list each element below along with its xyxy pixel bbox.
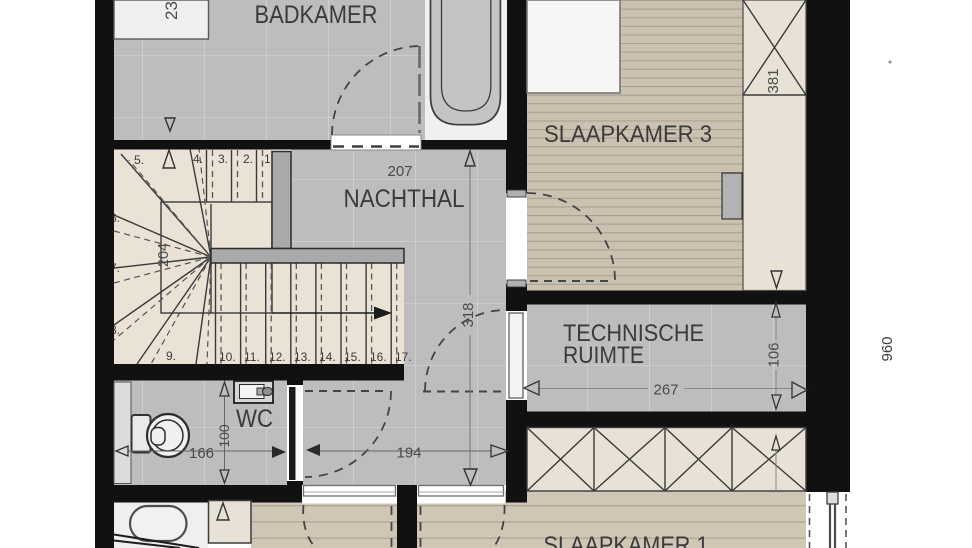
svg-text:318: 318 — [460, 302, 477, 327]
svg-text:2.: 2. — [243, 152, 253, 166]
svg-text:17.: 17. — [395, 350, 412, 364]
svg-text:13.: 13. — [294, 350, 311, 364]
svg-text:100: 100 — [216, 424, 232, 448]
svg-text:1: 1 — [264, 152, 271, 166]
svg-text:207: 207 — [387, 163, 412, 180]
svg-text:SLAAPKAMER 3: SLAAPKAMER 3 — [544, 121, 712, 148]
svg-text:960: 960 — [879, 336, 896, 361]
svg-text:267: 267 — [653, 382, 678, 399]
svg-text:WC: WC — [236, 405, 273, 433]
svg-text:10.: 10. — [219, 350, 236, 364]
svg-text:106: 106 — [766, 342, 783, 367]
svg-text:381: 381 — [765, 68, 782, 93]
svg-text:NACHTHAL: NACHTHAL — [344, 185, 465, 213]
svg-text:5.: 5. — [134, 153, 144, 167]
svg-text:SLAAPKAMER 1: SLAAPKAMER 1 — [544, 532, 709, 548]
svg-text:14.: 14. — [319, 350, 336, 364]
svg-text:12.: 12. — [269, 350, 286, 364]
svg-text:15.: 15. — [344, 350, 361, 364]
svg-text:194: 194 — [396, 445, 421, 462]
svg-text:11.: 11. — [244, 350, 260, 364]
svg-text:BADKAMER: BADKAMER — [255, 1, 378, 29]
svg-text:3.: 3. — [218, 152, 228, 166]
svg-text:4.: 4. — [193, 152, 203, 166]
svg-text:9.: 9. — [166, 349, 176, 363]
svg-text:16.: 16. — [370, 350, 387, 364]
svg-text:RUIMTE: RUIMTE — [563, 342, 644, 369]
svg-text:166: 166 — [189, 445, 214, 462]
svg-text:204: 204 — [156, 243, 172, 267]
svg-text:239: 239 — [162, 0, 181, 20]
